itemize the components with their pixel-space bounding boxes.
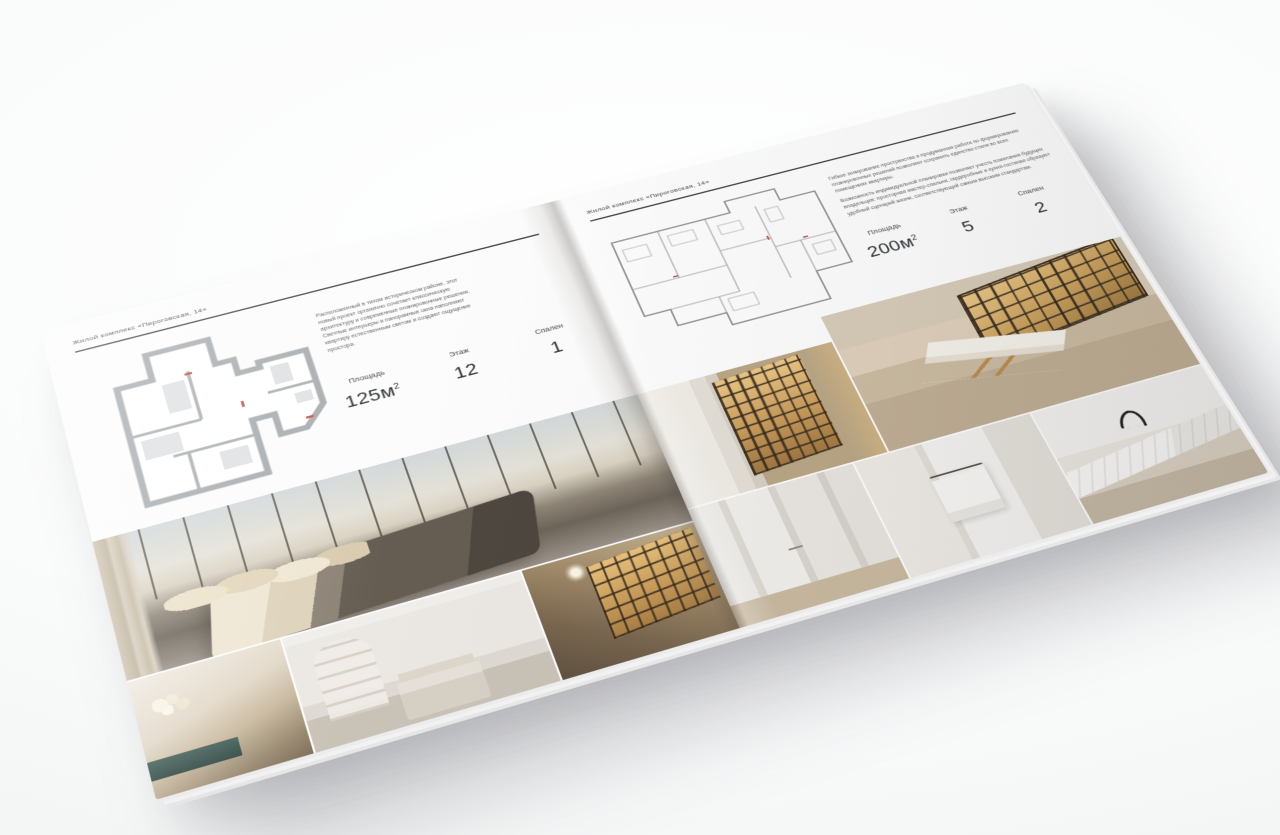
open-brochure: Жилой комплекс «Пироговская, 14» [40, 83, 1268, 800]
spec-area-number: 125м [342, 381, 397, 412]
spec-floor-value: 12 [436, 355, 495, 387]
spec-area: Площадь 125м2 [338, 366, 404, 412]
brochure-spread: Жилой комплекс «Пироговская, 14» [60, 100, 1220, 700]
spec-area-number: 200м [864, 233, 917, 261]
left-description: Расположенный в тихом историческом район… [315, 274, 483, 355]
spec-area-sup: 2 [392, 381, 401, 391]
spec-bedrooms-value: 1 [527, 331, 586, 362]
spec-bedrooms: Спален 1 [522, 318, 586, 362]
spec-bedrooms-value: 2 [1012, 193, 1069, 222]
spec-area: Площадь 200м2 [857, 219, 923, 261]
spec-area-value: 200м2 [864, 231, 923, 261]
photo-backdrop: Жилой комплекс «Пироговская, 14» [0, 0, 1280, 835]
spec-bedrooms: Спален 2 [1005, 181, 1069, 221]
spec-floor: Этаж 12 [431, 342, 495, 387]
spec-floor-value: 5 [939, 212, 996, 241]
spec-floor: Этаж 5 [933, 200, 997, 241]
